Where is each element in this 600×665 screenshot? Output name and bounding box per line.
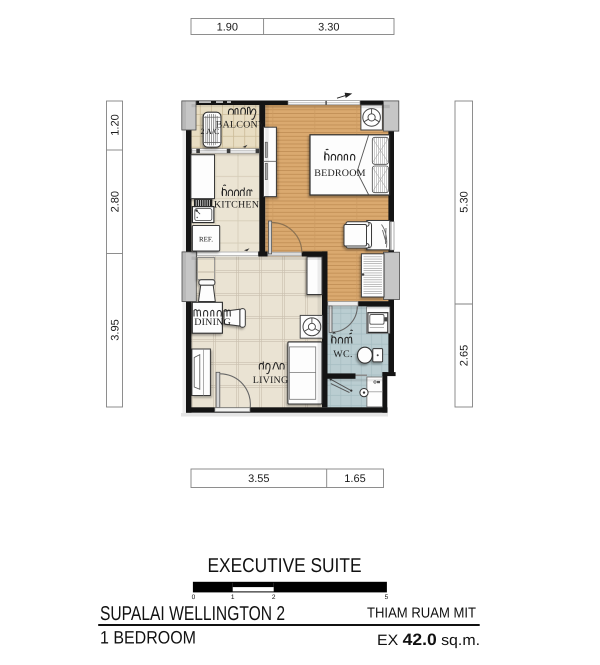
svg-text:2: 2	[272, 594, 276, 601]
svg-text:KITCHEN: KITCHEN	[214, 200, 259, 211]
svg-text:0: 0	[192, 594, 196, 601]
svg-text:3.55: 3.55	[248, 473, 269, 485]
svg-text:EX 42.0 sq.m.: EX 42.0 sq.m.	[377, 631, 480, 649]
svg-text:REF.: REF.	[199, 236, 213, 244]
svg-text:1 BEDROOM: 1 BEDROOM	[100, 628, 196, 648]
svg-text:1: 1	[231, 594, 235, 601]
svg-text:2.65: 2.65	[459, 345, 471, 366]
svg-text:2.80: 2.80	[110, 191, 122, 212]
svg-text:1.90: 1.90	[217, 22, 238, 34]
svg-text:3.30: 3.30	[318, 22, 339, 34]
svg-text:SUPALAI WELLINGTON 2: SUPALAI WELLINGTON 2	[100, 603, 285, 625]
svg-text:DINING: DINING	[194, 317, 231, 328]
svg-text:3.95: 3.95	[110, 319, 122, 340]
svg-text:THIAM RUAM MIT: THIAM RUAM MIT	[367, 606, 476, 622]
svg-text:5.30: 5.30	[459, 191, 471, 212]
svg-text:WC.: WC.	[333, 349, 353, 360]
svg-text:BEDROOM: BEDROOM	[314, 168, 365, 179]
svg-text:1.20: 1.20	[110, 114, 122, 135]
svg-text:BALCONY: BALCONY	[216, 120, 266, 131]
svg-text:EXECUTIVE SUITE: EXECUTIVE SUITE	[208, 555, 362, 577]
svg-text:5: 5	[385, 594, 389, 601]
svg-text:1.65: 1.65	[344, 473, 365, 485]
svg-text:LIVING: LIVING	[253, 375, 289, 386]
